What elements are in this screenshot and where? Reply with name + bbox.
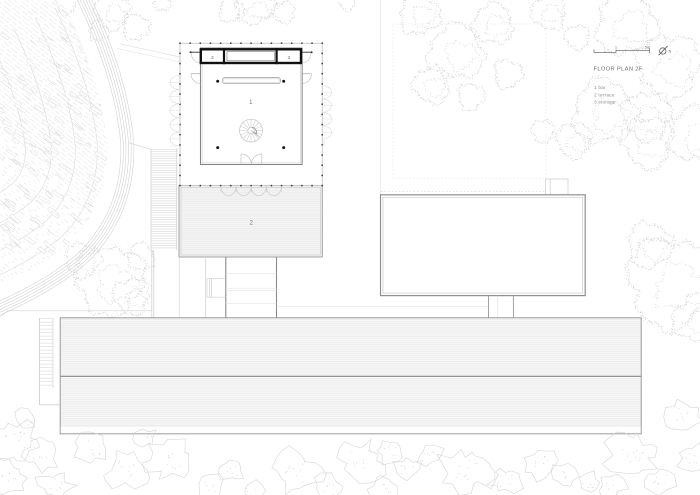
svg-text:FLOOR PLAN 2F: FLOOR PLAN 2F: [594, 66, 643, 72]
svg-text:3 storage: 3 storage: [594, 100, 616, 105]
svg-text:2 terrace: 2 terrace: [594, 92, 615, 97]
svg-text:1 bar: 1 bar: [594, 85, 606, 90]
svg-text:N: N: [669, 50, 672, 54]
svg-text:5m: 5m: [645, 44, 651, 49]
